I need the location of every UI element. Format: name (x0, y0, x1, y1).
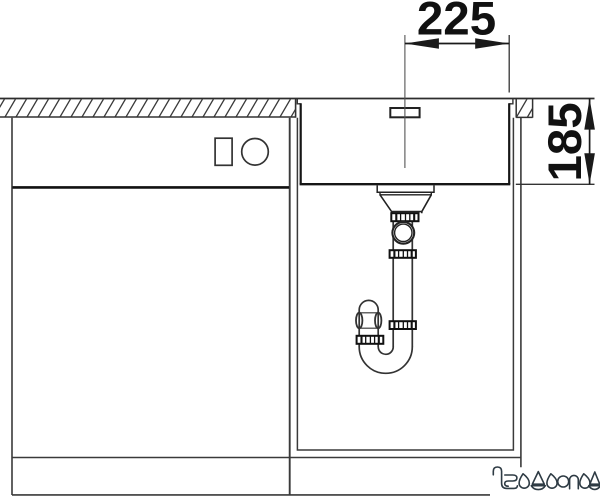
svg-text:185: 185 (539, 102, 592, 181)
svg-text:225: 225 (417, 0, 496, 45)
